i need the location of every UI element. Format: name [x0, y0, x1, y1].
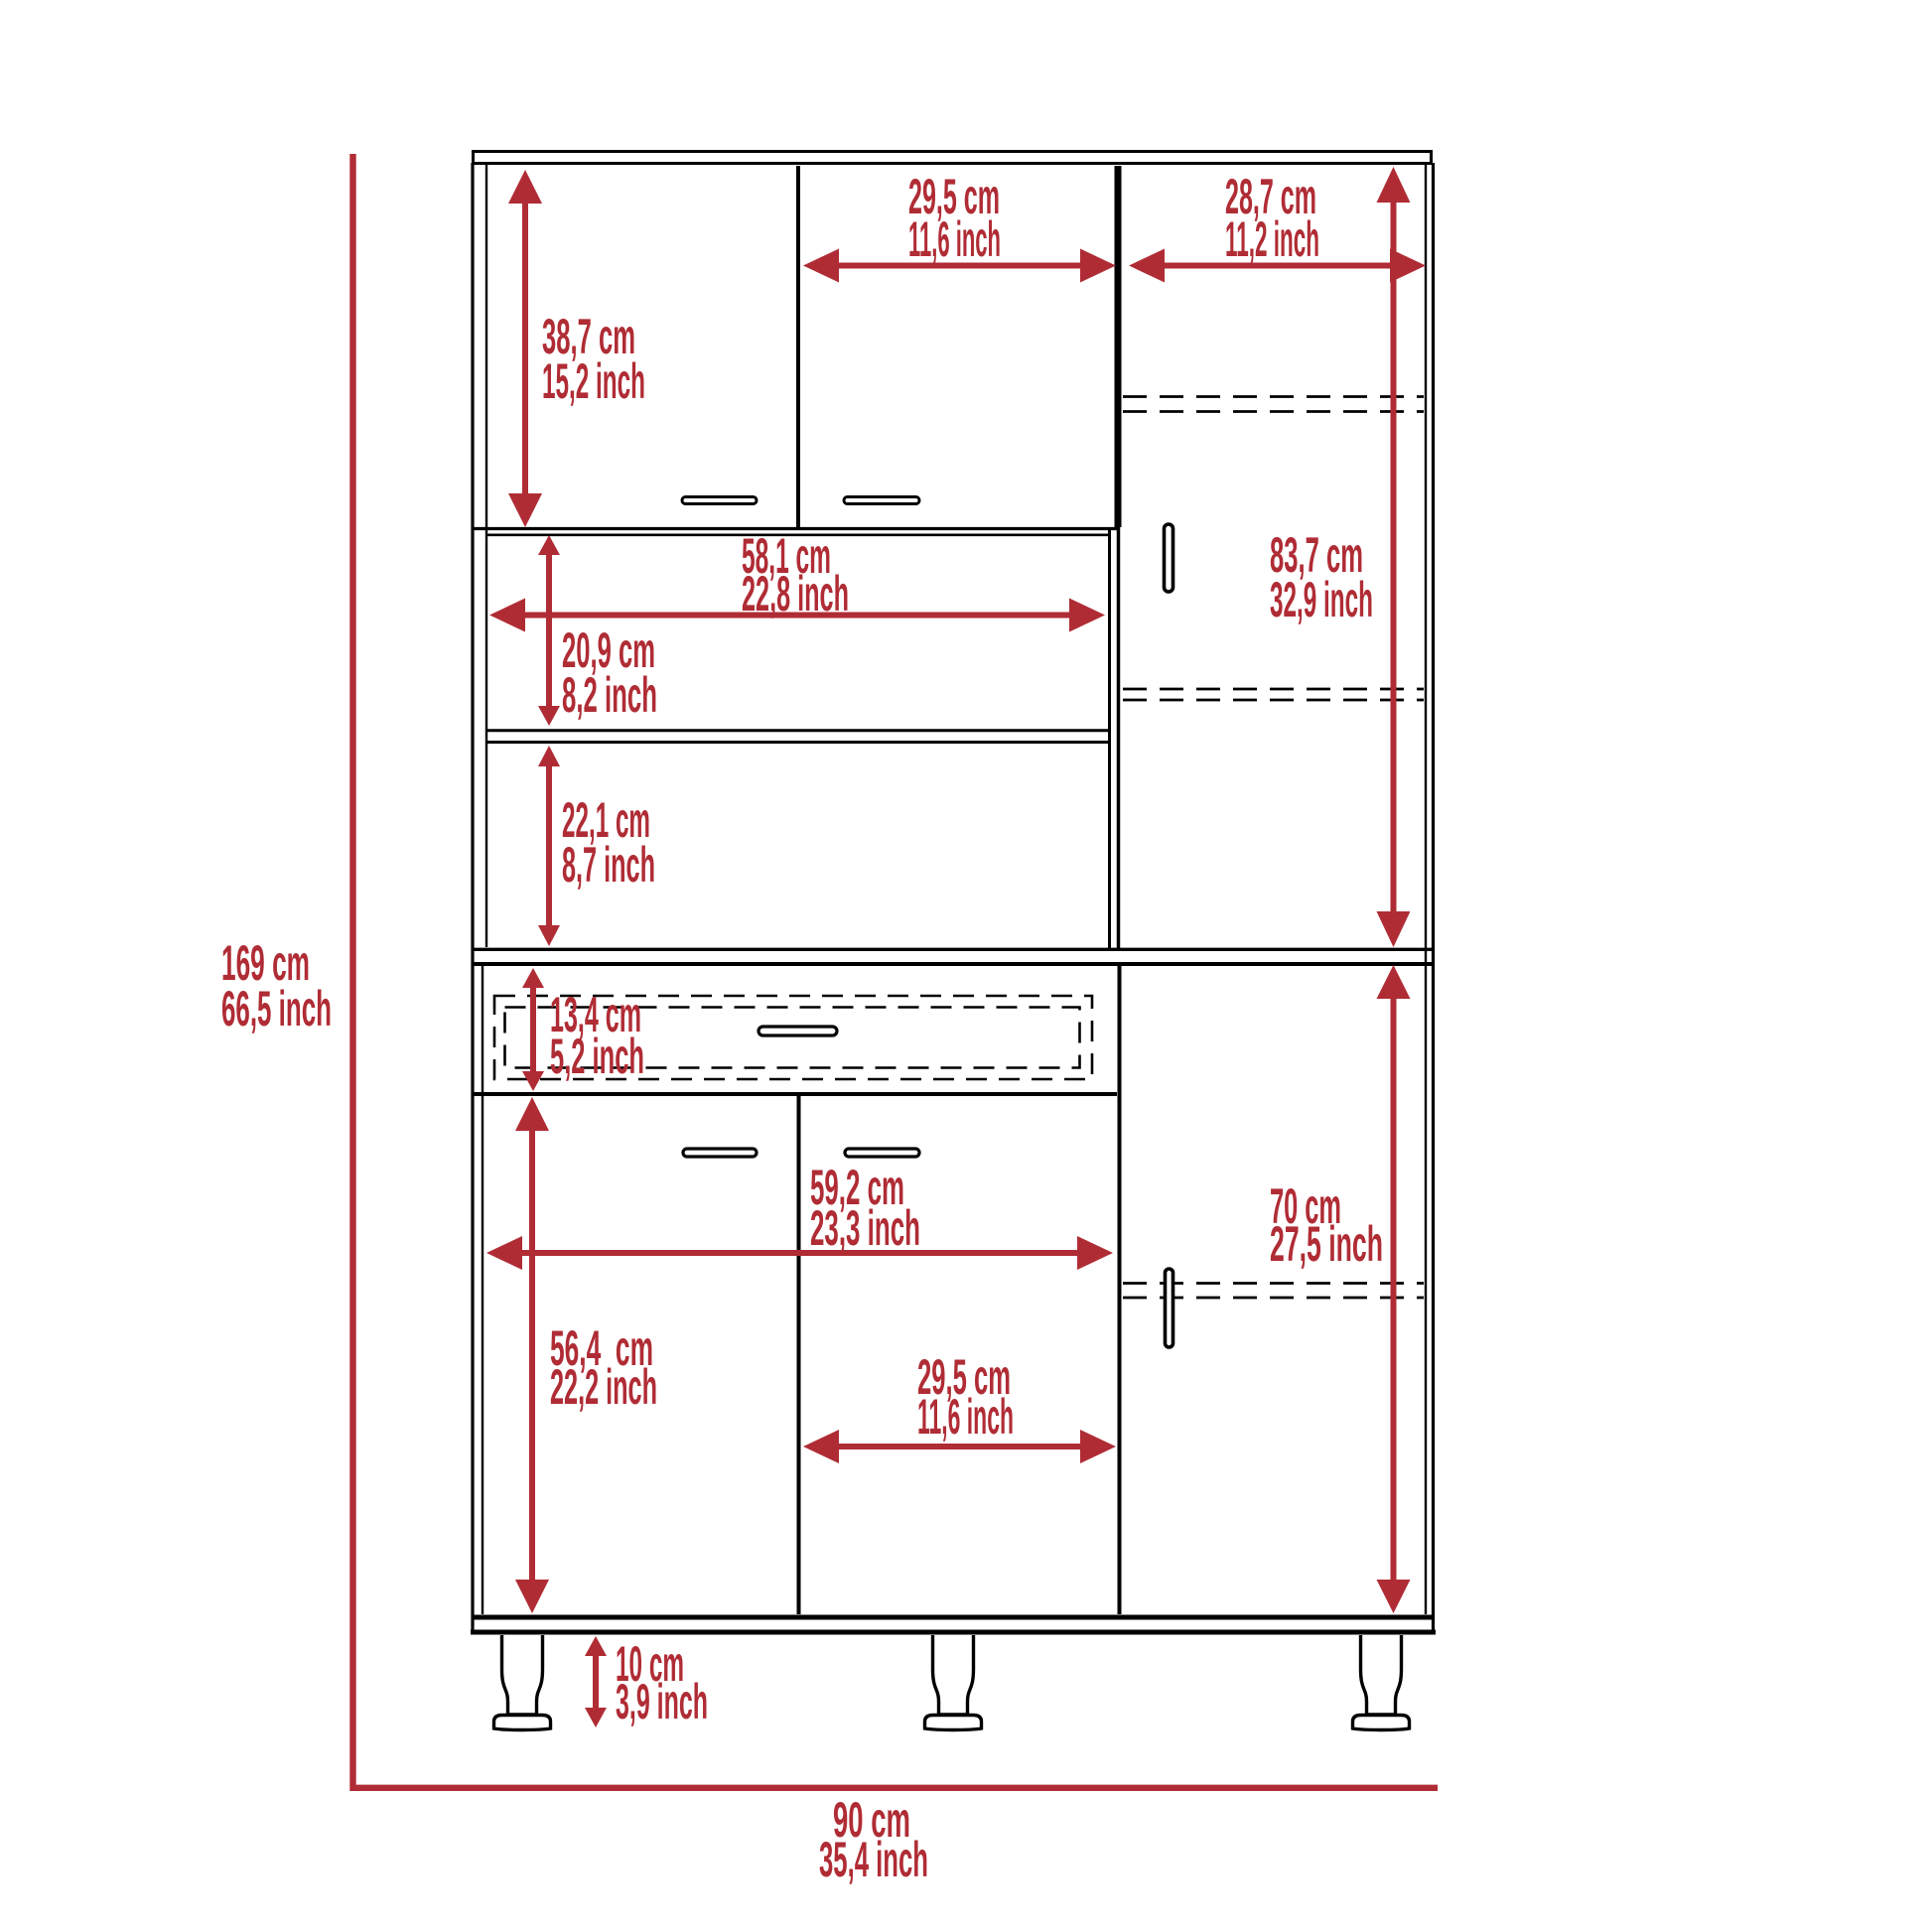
svg-text:22,8 inch: 22,8 inch: [742, 566, 849, 621]
svg-text:15,2 inch: 15,2 inch: [542, 353, 645, 409]
svg-text:32,9 inch: 32,9 inch: [1270, 572, 1373, 627]
svg-text:23,3 inch: 23,3 inch: [810, 1200, 920, 1256]
svg-text:11,6 inch: 11,6 inch: [917, 1389, 1014, 1445]
svg-text:11,6 inch: 11,6 inch: [908, 211, 1001, 267]
svg-text:27,5 inch: 27,5 inch: [1270, 1216, 1383, 1272]
svg-text:3,9 inch: 3,9 inch: [616, 1674, 708, 1729]
svg-text:22,2 inch: 22,2 inch: [550, 1359, 657, 1415]
svg-text:5,2 inch: 5,2 inch: [550, 1029, 644, 1084]
svg-text:8,7 inch: 8,7 inch: [562, 837, 655, 893]
svg-text:8,2 inch: 8,2 inch: [562, 667, 657, 723]
svg-text:35,4 inch: 35,4 inch: [819, 1832, 928, 1887]
svg-text:66,5 inch: 66,5 inch: [221, 981, 332, 1036]
svg-text:11,2 inch: 11,2 inch: [1225, 211, 1319, 267]
